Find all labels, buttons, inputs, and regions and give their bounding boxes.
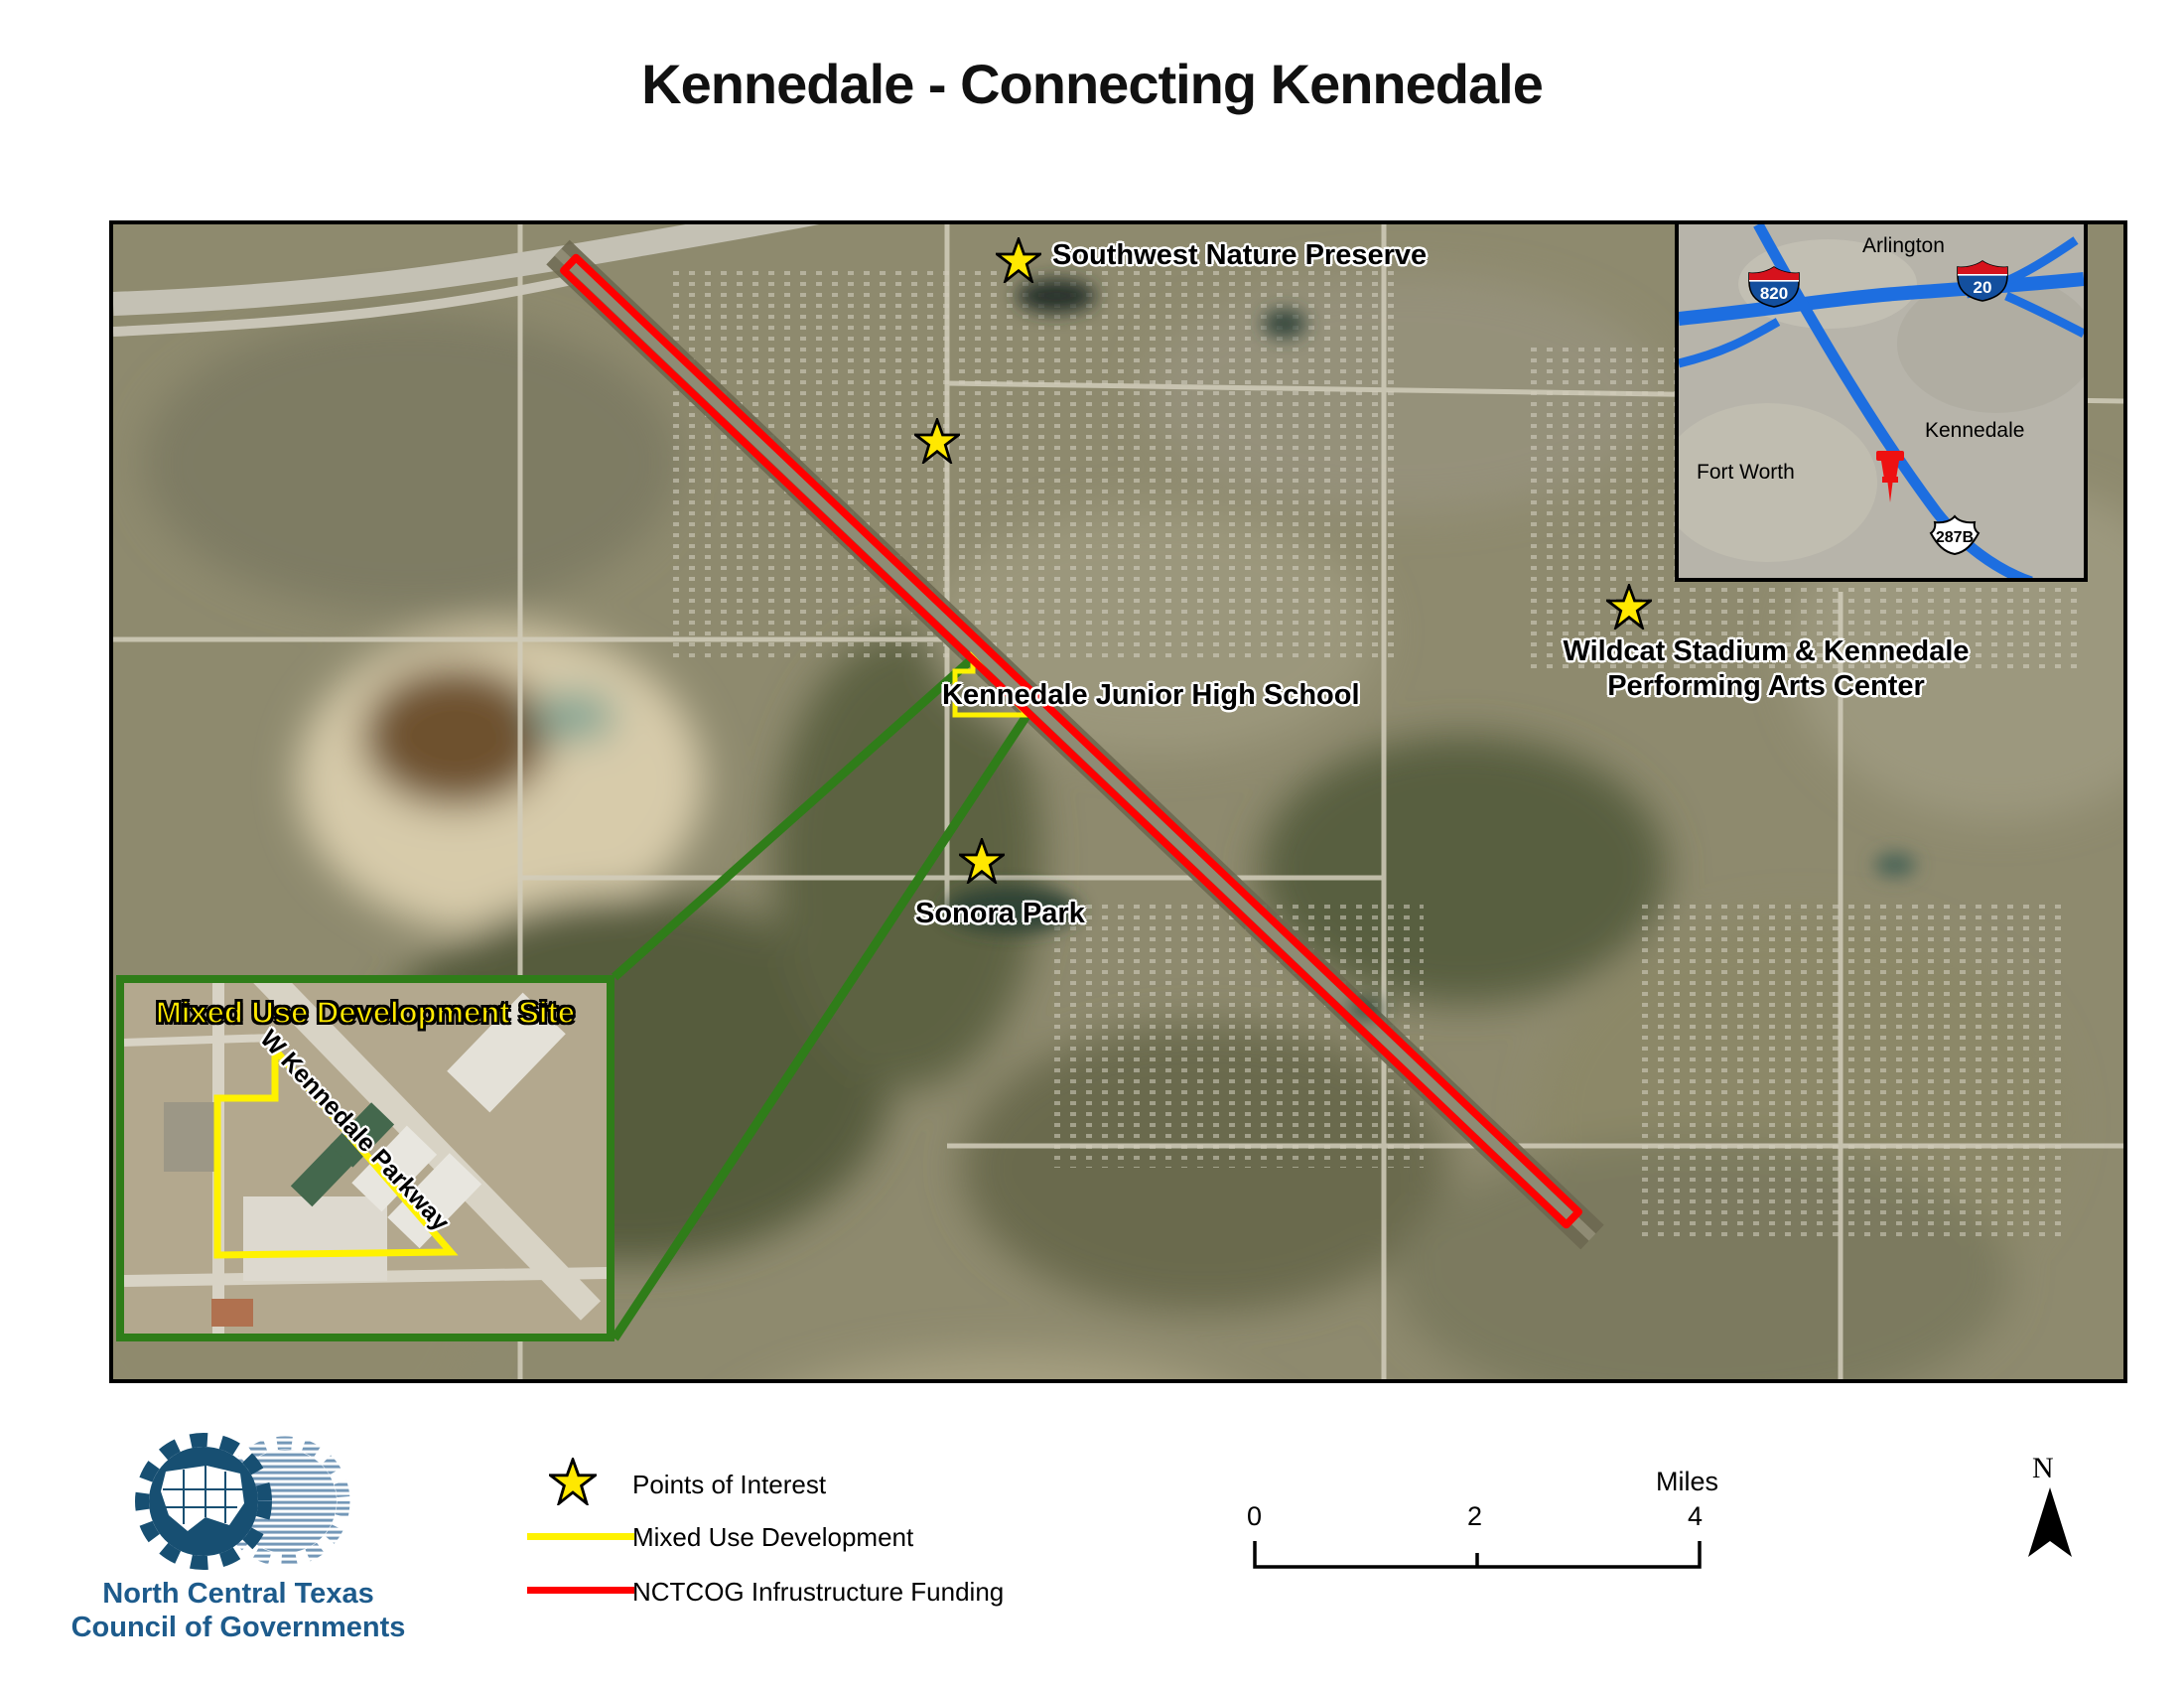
scale-bar-graphic [1253,1537,1702,1571]
legend-label-mixed-use: Mixed Use Development [632,1522,913,1553]
shield-820-number: 820 [1760,284,1788,303]
legend-swatch-funding [527,1587,634,1594]
main-map: Southwest Nature Preserve Kennedale Juni… [109,220,2127,1383]
poi-label-line1: Wildcat Stadium & Kennedale [1528,634,2004,669]
locator-inset: 820 20 287B [1675,220,2088,582]
poi-star-icon [1606,584,1652,630]
scale-tick-2: 2 [1467,1501,1482,1532]
nctcog-logo-text: North Central Texas Council of Governmen… [60,1577,417,1644]
shield-20-number: 20 [1974,278,1992,297]
legend-swatch-mixed-use [527,1533,634,1540]
page-title: Kennedale - Connecting Kennedale [0,52,2184,116]
map-poster: Kennedale - Connecting Kennedale [0,0,2184,1688]
rail-corridor [558,252,1592,1237]
locator-label-kennedale: Kennedale [1925,419,2024,443]
poi-star-icon [914,418,960,464]
poi-label: Sonora Park [915,898,1085,930]
locator-label-fort-worth: Fort Worth [1697,461,1795,485]
poi-label: Wildcat Stadium & Kennedale Performing A… [1528,634,2004,704]
north-label: N [2032,1452,2054,1485]
site-detail-inset: Mixed Use Development Site W Kennedale P… [116,975,614,1341]
poi-star-icon [996,237,1041,283]
callout-lines [614,658,1026,1338]
north-arrow-icon [2027,1487,2073,1557]
shield-287b-number: 287B [1936,529,1974,546]
poi-label: Kennedale Junior High School [942,679,1360,712]
scale-tick-4: 4 [1688,1501,1703,1532]
freeway [113,224,818,332]
poi-label: Southwest Nature Preserve [1052,239,1427,272]
legend-label-poi: Points of Interest [632,1470,826,1500]
poi-label-line2: Performing Arts Center [1528,669,2004,704]
poi-star-icon [959,838,1005,884]
legend-star-icon [549,1458,597,1505]
legend-label-funding: NCTCOG Infrustructure Funding [632,1577,1004,1608]
site-inset-title: Mixed Use Development Site [124,995,607,1031]
nctcog-logo-mark [114,1428,372,1585]
scale-unit-label: Miles [1656,1467,1718,1497]
locator-label-arlington: Arlington [1862,234,1945,258]
nctcog-funding-corridor [564,258,1578,1225]
locator-art: 820 20 287B [1679,224,2084,578]
logo-line2: Council of Governments [60,1611,417,1644]
logo-line1: North Central Texas [60,1577,417,1611]
scale-tick-0: 0 [1247,1501,1262,1532]
